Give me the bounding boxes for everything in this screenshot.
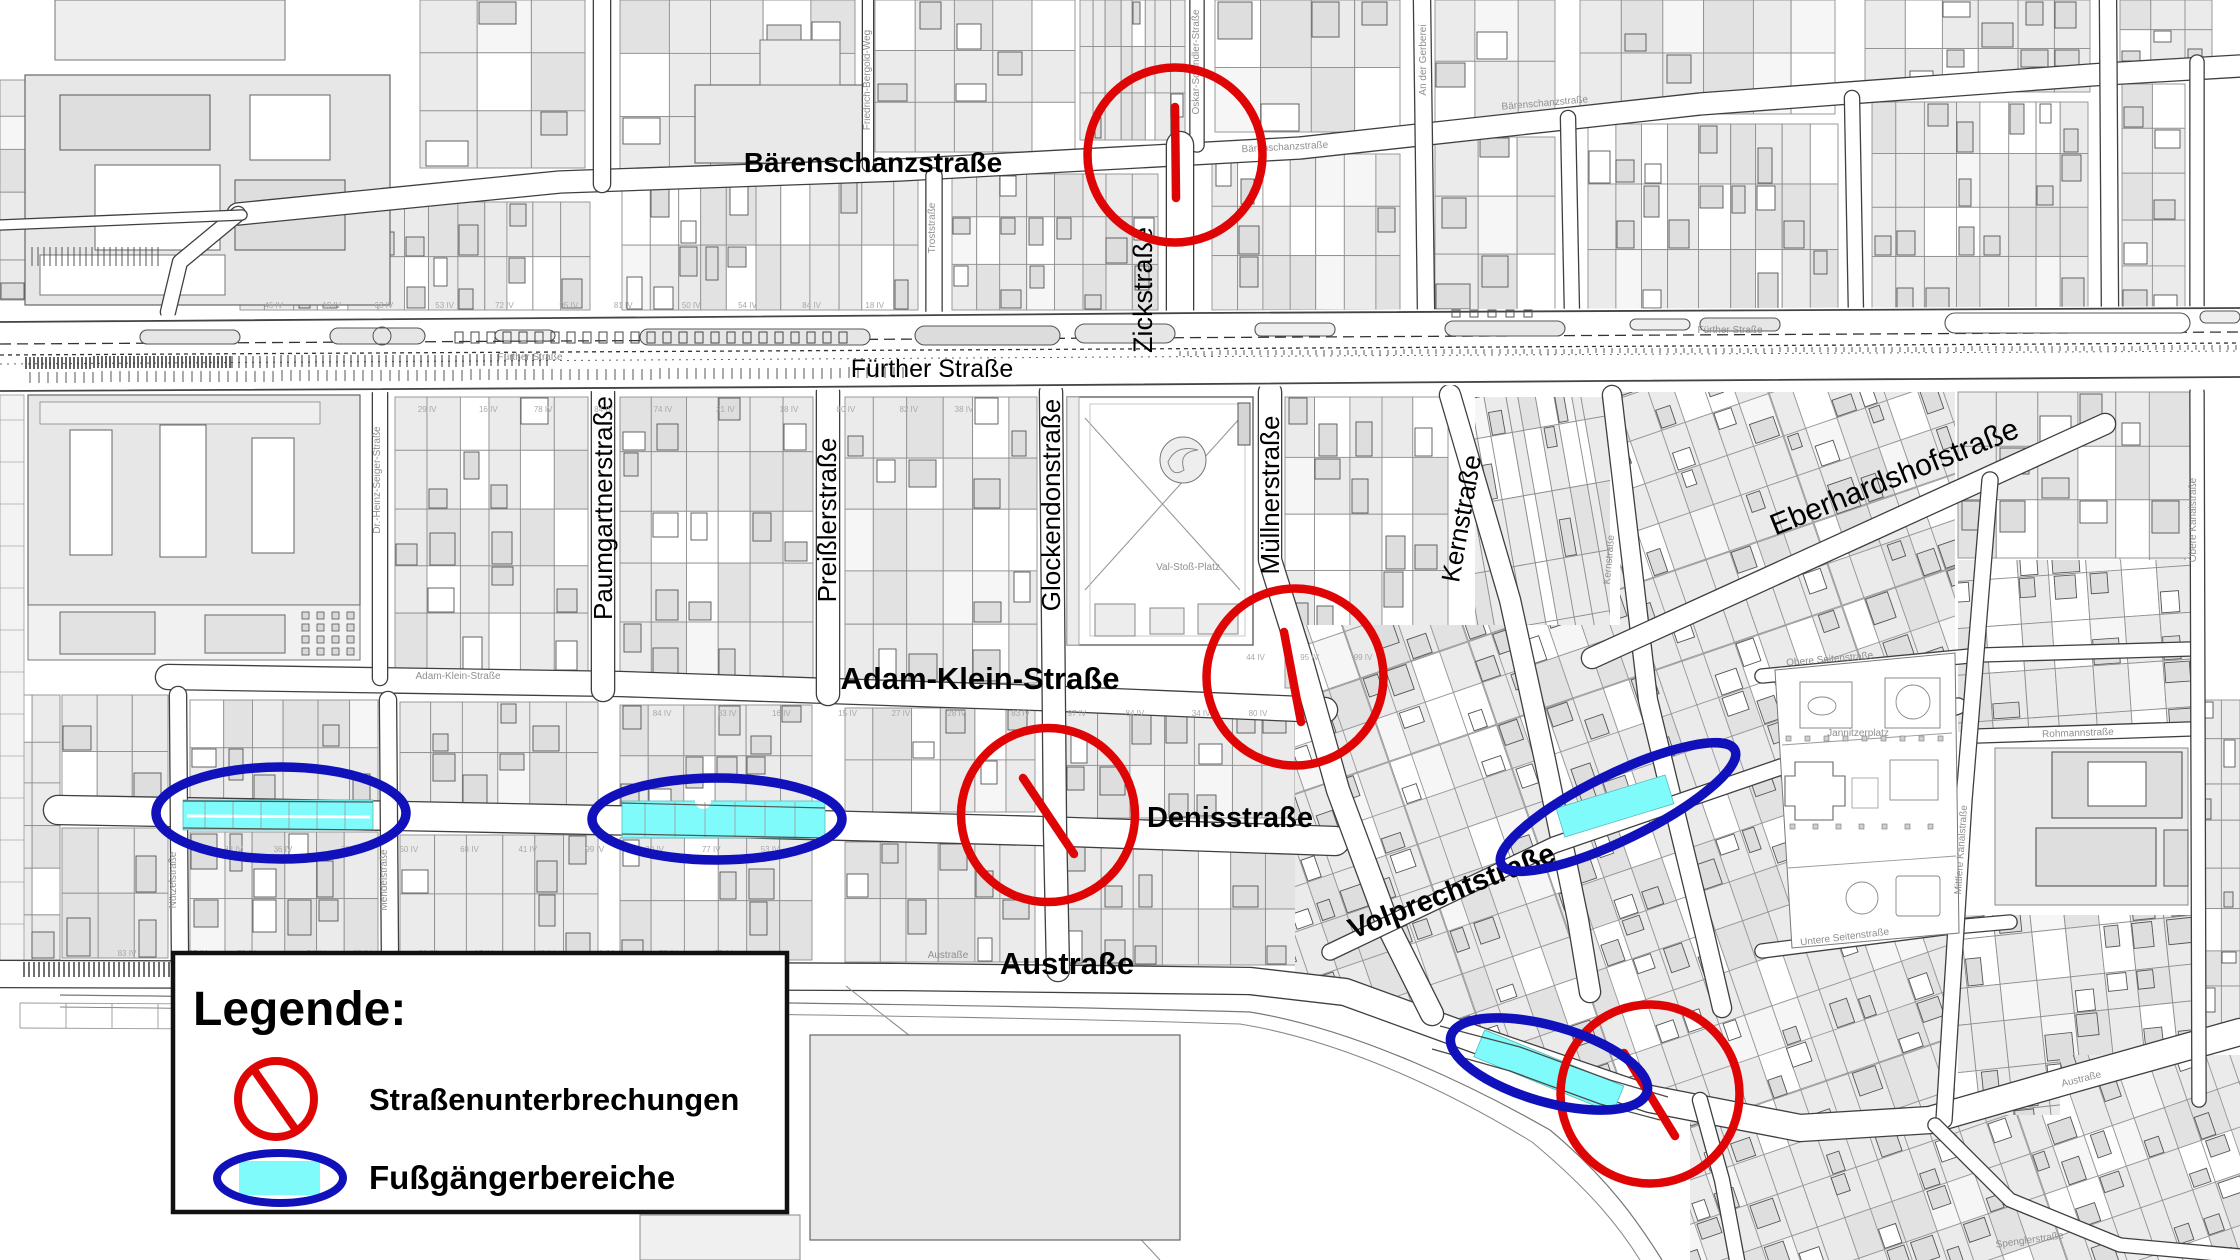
svg-text:Legende:: Legende: <box>193 983 406 1036</box>
svg-text:Val-Stoß-Platz: Val-Stoß-Platz <box>1156 562 1220 573</box>
svg-text:77 IV: 77 IV <box>702 845 721 854</box>
svg-text:Fußgängerbereiche: Fußgängerbereiche <box>369 1159 675 1196</box>
svg-text:83 IV: 83 IV <box>718 709 737 718</box>
svg-text:Adam-Klein-Straße: Adam-Klein-Straße <box>840 661 1119 696</box>
svg-text:28 IV: 28 IV <box>947 709 966 718</box>
svg-text:Troststraße: Troststraße <box>927 202 938 253</box>
svg-text:Glockendonstraße: Glockendonstraße <box>1036 399 1066 611</box>
svg-text:80 IV: 80 IV <box>1249 709 1268 718</box>
svg-text:95 IV: 95 IV <box>1300 653 1319 662</box>
svg-text:18 IV: 18 IV <box>780 405 799 414</box>
svg-text:21 IV: 21 IV <box>716 405 735 414</box>
svg-text:68 IV: 68 IV <box>460 845 479 854</box>
svg-text:44 IV: 44 IV <box>1246 653 1265 662</box>
svg-text:80 IV: 80 IV <box>837 405 856 414</box>
svg-text:34 IV: 34 IV <box>1192 709 1211 718</box>
svg-text:Denisstraße: Denisstraße <box>1147 802 1313 834</box>
svg-text:Preißlerstraße: Preißlerstraße <box>812 438 842 603</box>
svg-text:Fürther Straße: Fürther Straße <box>497 352 562 363</box>
svg-text:Dr.-Heinz-Seiger-Straße: Dr.-Heinz-Seiger-Straße <box>372 426 383 534</box>
svg-text:19 IV: 19 IV <box>322 301 341 310</box>
svg-text:Nützelstraße: Nützelstraße <box>168 851 179 908</box>
svg-text:54 IV: 54 IV <box>738 301 757 310</box>
svg-text:82 IV: 82 IV <box>899 405 918 414</box>
svg-text:50 IV: 50 IV <box>399 845 418 854</box>
svg-text:Oskar-Schindler-Straße: Oskar-Schindler-Straße <box>1191 9 1202 114</box>
svg-text:38 IV: 38 IV <box>955 405 974 414</box>
svg-text:Zickstraße: Zickstraße <box>1128 227 1158 353</box>
svg-text:Müllnerstraße: Müllnerstraße <box>1255 416 1285 575</box>
svg-text:84 IV: 84 IV <box>1126 709 1145 718</box>
svg-text:99 IV: 99 IV <box>1354 653 1373 662</box>
svg-text:27 IV: 27 IV <box>892 709 911 718</box>
svg-text:16 IV: 16 IV <box>479 405 498 414</box>
svg-text:81 IV: 81 IV <box>614 301 633 310</box>
svg-text:41 IV: 41 IV <box>518 845 537 854</box>
svg-text:Fürther Straße: Fürther Straße <box>851 355 1014 383</box>
svg-text:46 IV: 46 IV <box>264 301 283 310</box>
svg-text:An der Gerberei: An der Gerberei <box>1418 24 1429 95</box>
svg-text:Adam-Klein-Straße: Adam-Klein-Straße <box>415 671 500 682</box>
svg-text:84 IV: 84 IV <box>802 301 821 310</box>
svg-text:15 IV: 15 IV <box>838 709 857 718</box>
svg-text:78 IV: 78 IV <box>534 405 553 414</box>
svg-text:50 IV: 50 IV <box>682 301 701 310</box>
svg-text:36 IV: 36 IV <box>274 845 293 854</box>
svg-text:84 IV: 84 IV <box>653 709 672 718</box>
svg-text:83 IV: 83 IV <box>1011 709 1030 718</box>
svg-text:Obere Kanalstraße: Obere Kanalstraße <box>2188 477 2199 562</box>
svg-text:84 IV: 84 IV <box>594 405 613 414</box>
svg-text:Straßenunterbrechungen: Straßenunterbrechungen <box>369 1082 739 1117</box>
svg-text:97 IV: 97 IV <box>1068 709 1087 718</box>
svg-text:Paumgartnerstraße: Paumgartnerstraße <box>588 396 618 620</box>
svg-text:99 IV: 99 IV <box>585 845 604 854</box>
svg-text:83 IV: 83 IV <box>118 949 137 958</box>
svg-text:Fürther Straße: Fürther Straße <box>1697 325 1762 336</box>
svg-text:53 IV: 53 IV <box>435 301 454 310</box>
svg-text:72 IV: 72 IV <box>495 301 514 310</box>
svg-text:Bärenschanzstraße: Bärenschanzstraße <box>744 147 1002 178</box>
svg-text:29 IV: 29 IV <box>418 405 437 414</box>
svg-text:95 IV: 95 IV <box>559 301 578 310</box>
svg-text:Friedrich-Bergold-Weg: Friedrich-Bergold-Weg <box>862 30 873 130</box>
svg-text:16 IV: 16 IV <box>772 709 791 718</box>
svg-text:Jannitzerplatz: Jannitzerplatz <box>1827 728 1889 739</box>
svg-text:74 IV: 74 IV <box>654 405 673 414</box>
svg-text:18 IV: 18 IV <box>865 301 884 310</box>
svg-text:63 IV: 63 IV <box>375 301 394 310</box>
svg-text:Mendelstraße: Mendelstraße <box>379 849 390 911</box>
svg-text:Austraße: Austraße <box>928 950 969 961</box>
svg-text:Austraße: Austraße <box>1000 946 1134 981</box>
